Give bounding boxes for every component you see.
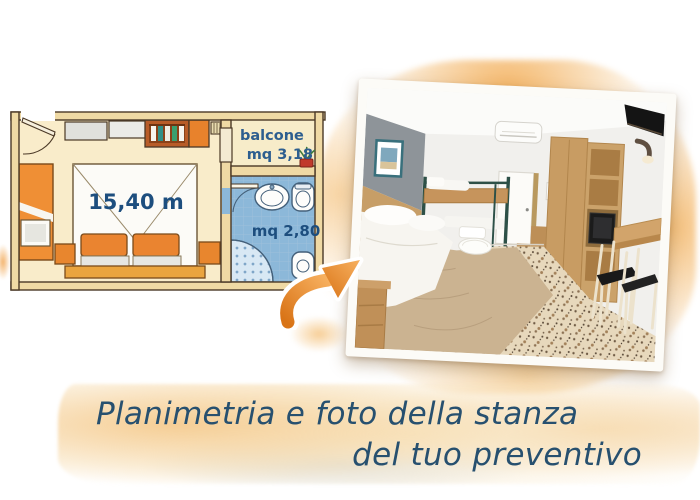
plan-sink: [255, 184, 289, 210]
plan-luggage-benches: [65, 121, 149, 140]
plan-toilet: [292, 183, 314, 211]
caption-line-1: Planimetria e foto della stanza: [96, 396, 578, 432]
plan-ottoman-left: [55, 244, 75, 264]
plan-balcony-door: [220, 128, 232, 162]
plan-double-bed: [65, 164, 205, 278]
photo-ac-unit: [495, 121, 542, 143]
room-photo: [345, 78, 676, 371]
plan-ottoman-right: [199, 242, 220, 264]
arrow-icon: [272, 252, 368, 330]
plan-wardrobe: [145, 120, 189, 147]
plan-bathroom-door-leaf: [231, 184, 258, 188]
plan-cabinet: [189, 120, 209, 147]
promo-image: 15,40 m balcone mq 3,18 mq 2,80: [0, 0, 700, 500]
bathroom-area-label: mq 2,80: [252, 222, 321, 240]
caption-line-2: del tuo preventivo: [0, 437, 642, 473]
room-area-label: 15,40 m: [88, 190, 184, 214]
balcony-label: balcone: [240, 128, 304, 144]
balcony-area-label: mq 3,18: [247, 147, 313, 163]
plan-bathroom-door-gap: [222, 188, 230, 214]
plan-single-bed: [19, 164, 53, 260]
room-photo-scene: [355, 88, 667, 362]
photo-picture-frame: [375, 140, 403, 176]
